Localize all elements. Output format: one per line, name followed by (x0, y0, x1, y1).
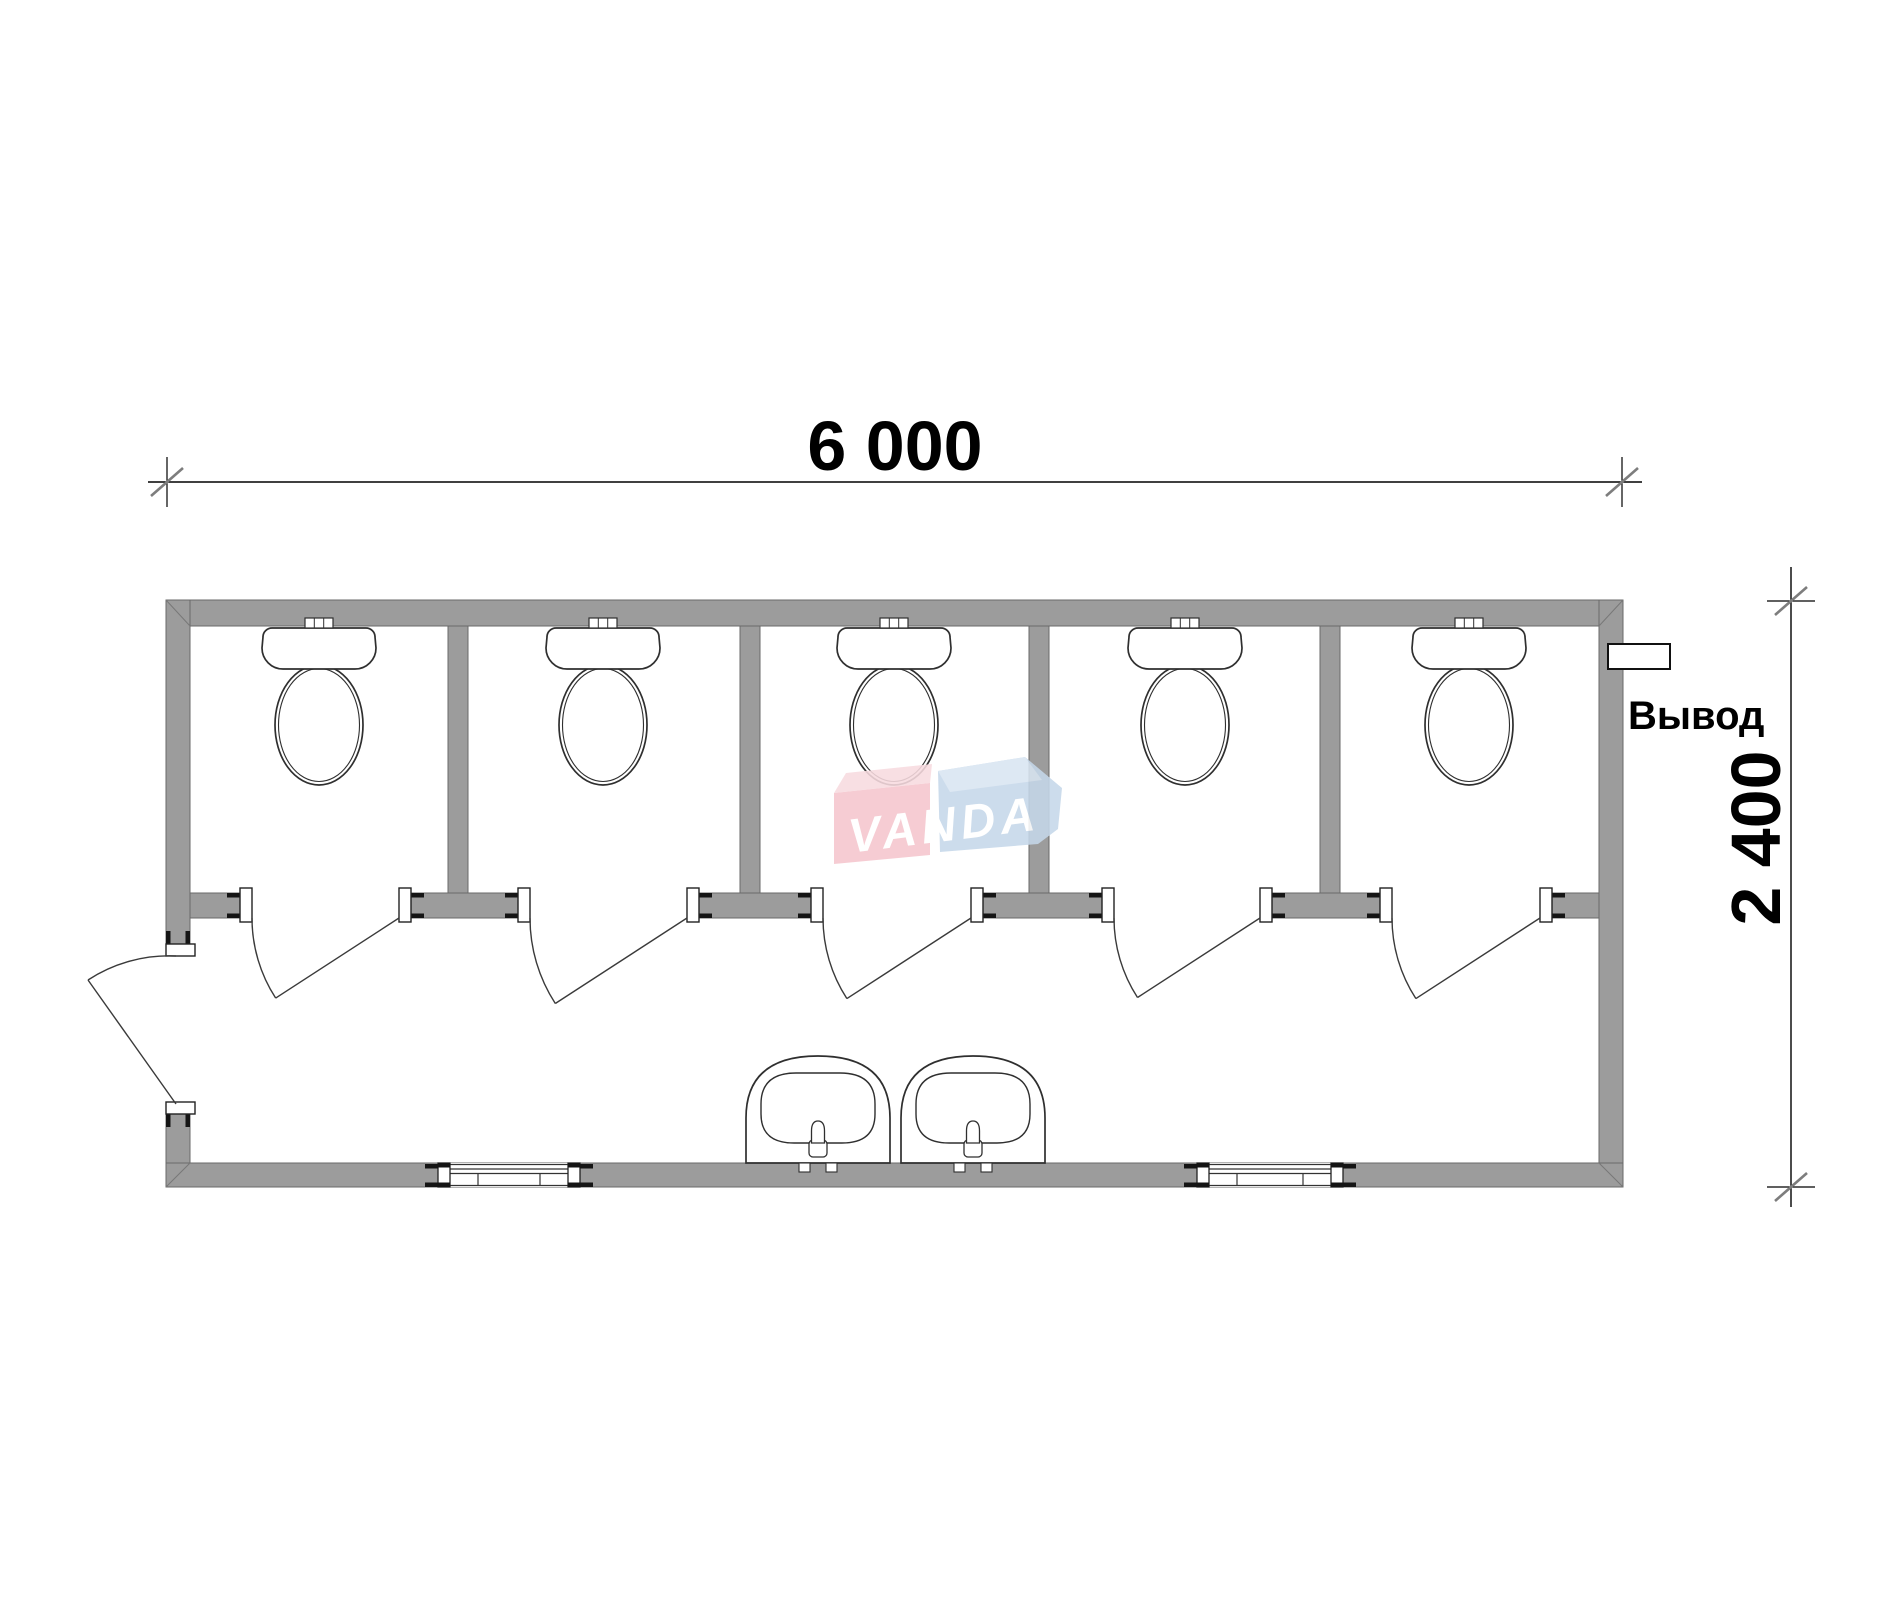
door-swing-arc (823, 918, 847, 999)
door-swing-arc (530, 918, 555, 1004)
stall-door-5 (1392, 918, 1540, 999)
floor-plan-drawing: 6 000 2 400 Вывод VANDA (0, 0, 1899, 1617)
toilet-tank (546, 628, 660, 669)
stall-door-jamb (687, 888, 699, 922)
wall-end-cap (580, 1164, 593, 1169)
wall-end-cap (1272, 914, 1285, 919)
wall-end-cap (166, 1114, 171, 1127)
stall-door-jamb (1380, 888, 1392, 922)
toilet-1 (262, 618, 376, 785)
right-exterior-wall (1599, 600, 1623, 1187)
wall-end-cap (1089, 893, 1102, 898)
right-dimension: 2 400 (1717, 567, 1795, 1207)
toilet-tank (262, 628, 376, 669)
wall-end-cap (227, 914, 240, 919)
window-jamb-cap (1331, 1163, 1343, 1168)
window-jamb-cap (438, 1163, 450, 1168)
sink-faucet-spout (812, 1121, 825, 1143)
toilet-5 (1412, 618, 1526, 785)
top-dimension: 6 000 (148, 407, 1642, 485)
sink-faucet-spout (967, 1121, 980, 1143)
sink-1 (746, 1056, 890, 1172)
wall-end-cap (1552, 893, 1565, 898)
entry-door-jamb (166, 944, 195, 956)
stall-door-3 (823, 918, 971, 999)
window-jamb-cap (1197, 1183, 1209, 1188)
stall-partition-4 (1320, 626, 1340, 893)
wall-end-cap (425, 1183, 438, 1188)
window-jamb-cap (1331, 1183, 1343, 1188)
wall-end-cap (983, 893, 996, 898)
wall-end-cap (186, 1114, 191, 1127)
window-jamb-cap (568, 1183, 580, 1188)
stall-front-wall-stub-4 (1272, 893, 1380, 918)
wall-end-cap (983, 914, 996, 919)
sink-mount (981, 1163, 992, 1172)
sink-mount (799, 1163, 810, 1172)
door-leaf (847, 918, 971, 999)
outlet-pipe: Вывод (1608, 644, 1764, 738)
stall-partition-2 (740, 626, 760, 893)
wall-end-cap (1367, 914, 1380, 919)
door-leaf (1416, 918, 1540, 999)
stall-front-wall-stub-2 (699, 893, 811, 918)
toilet-flush-buttons (880, 618, 908, 628)
sink-2 (901, 1056, 1045, 1172)
vanda-watermark: VANDA (834, 757, 1062, 864)
sink-mount (954, 1163, 965, 1172)
entry-door (88, 956, 176, 1104)
toilet-flush-buttons (1455, 618, 1483, 628)
stall-door-jamb (1260, 888, 1272, 922)
toilet-bowl-outer (1425, 665, 1513, 785)
door-swing-arc (252, 918, 276, 998)
toilet-flush-buttons (305, 618, 333, 628)
toilet-bowl-outer (559, 665, 647, 785)
wall-end-cap (1552, 914, 1565, 919)
bottom-exterior-wall (166, 1163, 1623, 1187)
stall-door-jamb (518, 888, 530, 922)
stall-door-jamb (240, 888, 252, 922)
stall-partition-3 (1029, 626, 1049, 893)
wall-end-cap (227, 893, 240, 898)
toilet-tank (1412, 628, 1526, 669)
wall-end-cap (1272, 893, 1285, 898)
entry-door-jamb (166, 1102, 195, 1114)
window-opening (1197, 1163, 1343, 1187)
stall-front-wall-stub-3 (983, 893, 1102, 918)
door-swing-arc (1114, 918, 1138, 998)
outlet-label: Вывод (1628, 694, 1764, 738)
height-dimension-label: 2 400 (1717, 750, 1795, 925)
toilet-tank (1128, 628, 1242, 669)
wall-end-cap (1367, 893, 1380, 898)
window-2 (1197, 1163, 1343, 1187)
window-opening (438, 1163, 580, 1187)
wall-end-cap (580, 1183, 593, 1188)
wall-end-cap (699, 893, 712, 898)
left-exterior-wall-upper (166, 600, 190, 944)
wall-end-cap (1184, 1183, 1197, 1188)
stall-door-2 (530, 918, 687, 1004)
wall-end-cap (798, 914, 811, 919)
wall-end-cap (166, 931, 171, 944)
window-1 (438, 1163, 580, 1187)
wall-end-cap (425, 1164, 438, 1169)
door-swing-arc (88, 956, 176, 980)
wall-end-cap (411, 914, 424, 919)
outlet-pipe-stub (1608, 644, 1670, 669)
toilet-tank (837, 628, 951, 669)
toilet-bowl-outer (1141, 665, 1229, 785)
wall-end-cap (1184, 1164, 1197, 1169)
stall-door-jamb (399, 888, 411, 922)
toilet-4 (1128, 618, 1242, 785)
stall-door-4 (1114, 918, 1260, 998)
stall-partition-1 (448, 626, 468, 893)
stall-door-jamb (1102, 888, 1114, 922)
stall-door-1 (252, 918, 399, 998)
door-leaf (88, 980, 176, 1104)
wall-end-cap (699, 914, 712, 919)
window-jamb-cap (438, 1183, 450, 1188)
wall-end-cap (505, 893, 518, 898)
toilet-flush-buttons (589, 618, 617, 628)
sinks (746, 1056, 1045, 1172)
toilet-2 (546, 618, 660, 785)
toilet-3 (837, 618, 951, 785)
stall-front-wall-stub-1 (411, 893, 518, 918)
door-leaf (1138, 918, 1261, 998)
wall-end-cap (1089, 914, 1102, 919)
door-leaf (555, 918, 687, 1004)
sink-mount (826, 1163, 837, 1172)
wall-end-cap (1343, 1183, 1356, 1188)
width-dimension-label: 6 000 (807, 407, 982, 485)
window-jamb-cap (568, 1163, 580, 1168)
window-jamb-cap (1197, 1163, 1209, 1168)
wall-end-cap (186, 931, 191, 944)
stall-door-jamb (811, 888, 823, 922)
wall-end-cap (411, 893, 424, 898)
door-swing-arc (1392, 918, 1416, 999)
toilet-bowl-outer (275, 665, 363, 785)
wall-end-cap (505, 914, 518, 919)
wall-end-cap (798, 893, 811, 898)
toilet-flush-buttons (1171, 618, 1199, 628)
floor-plan-canvas: 6 000 2 400 Вывод VANDA (0, 0, 1899, 1617)
wall-end-cap (1343, 1164, 1356, 1169)
door-leaf (276, 918, 399, 998)
stall-door-jamb (971, 888, 983, 922)
stall-door-jamb (1540, 888, 1552, 922)
